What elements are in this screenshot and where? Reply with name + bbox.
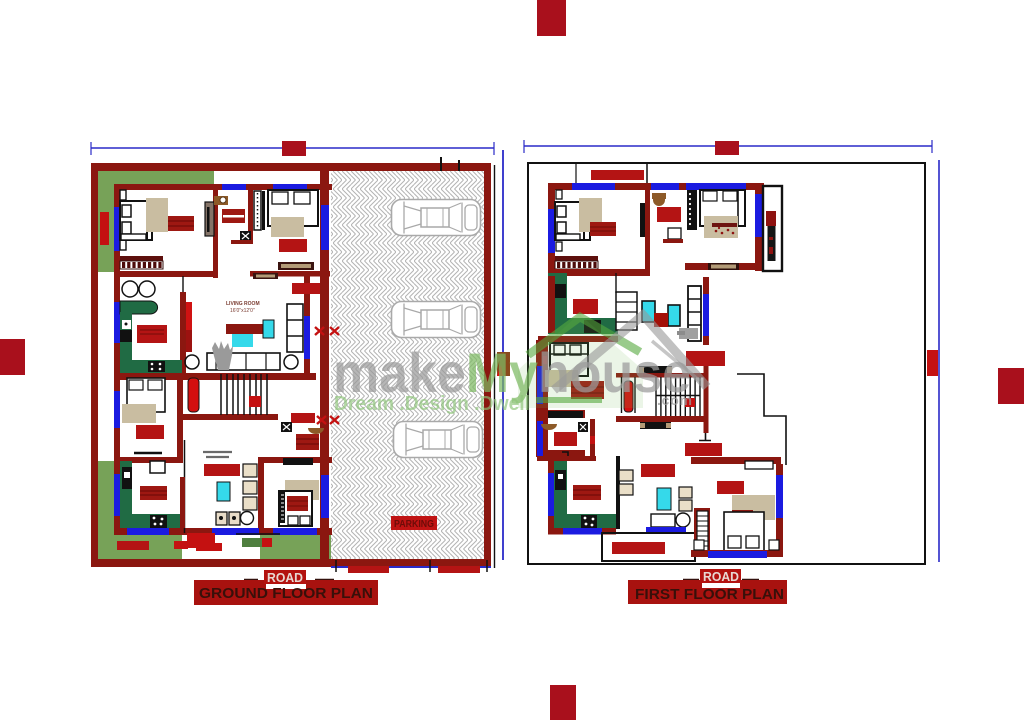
svg-text:FIRST FLOOR PLAN: FIRST FLOOR PLAN <box>635 587 784 603</box>
svg-text:ROAD: ROAD <box>703 570 739 584</box>
svg-text:LIVING ROOM: LIVING ROOM <box>226 301 260 307</box>
svg-text:.com: .com <box>657 392 692 408</box>
svg-text:GROUND FLOOR PLAN: GROUND FLOOR PLAN <box>199 586 373 602</box>
svg-text:PARKING: PARKING <box>394 518 434 530</box>
svg-text:ROAD: ROAD <box>267 571 303 585</box>
svg-text:16'0"x12'0": 16'0"x12'0" <box>230 308 255 314</box>
svg-text:Dream .Design .Dwell: Dream .Design .Dwell <box>334 393 530 415</box>
